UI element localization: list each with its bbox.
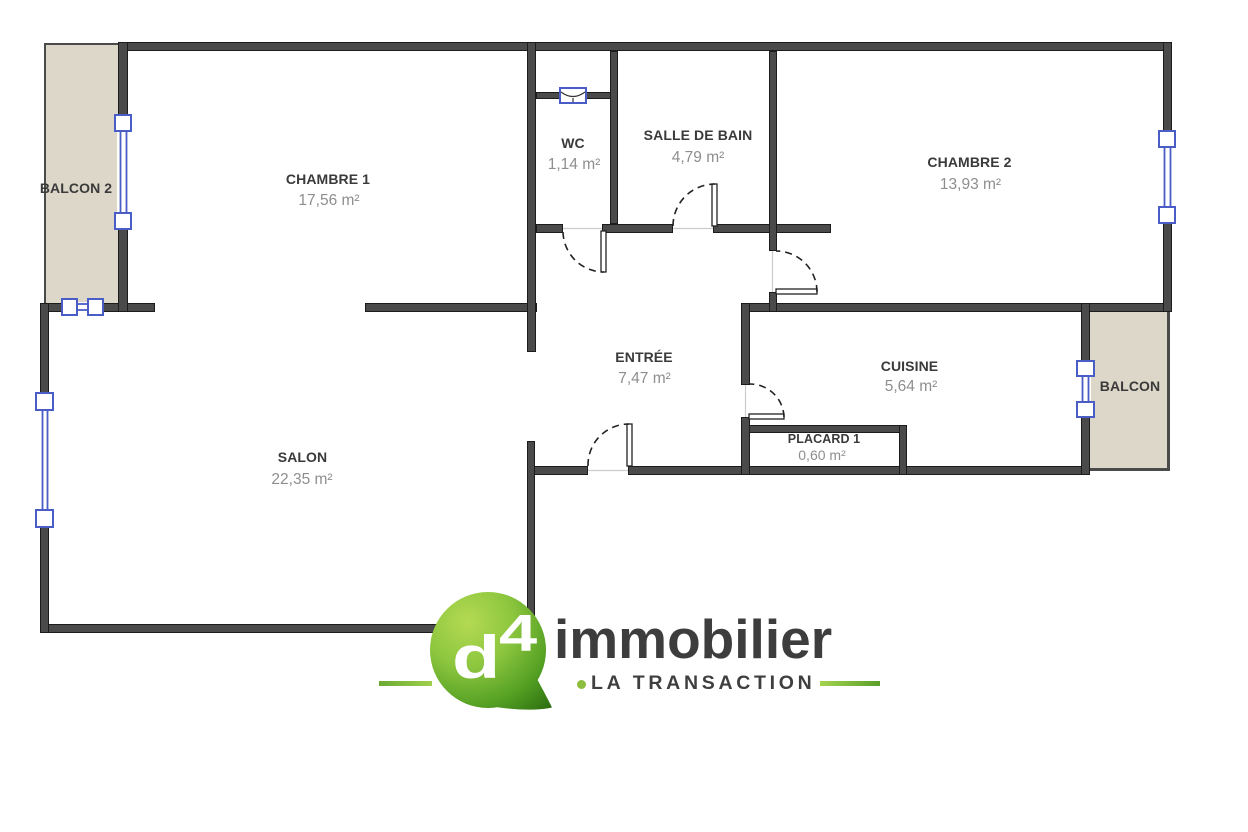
svg-text:d: d — [452, 623, 500, 690]
svg-text:4: 4 — [499, 604, 537, 662]
